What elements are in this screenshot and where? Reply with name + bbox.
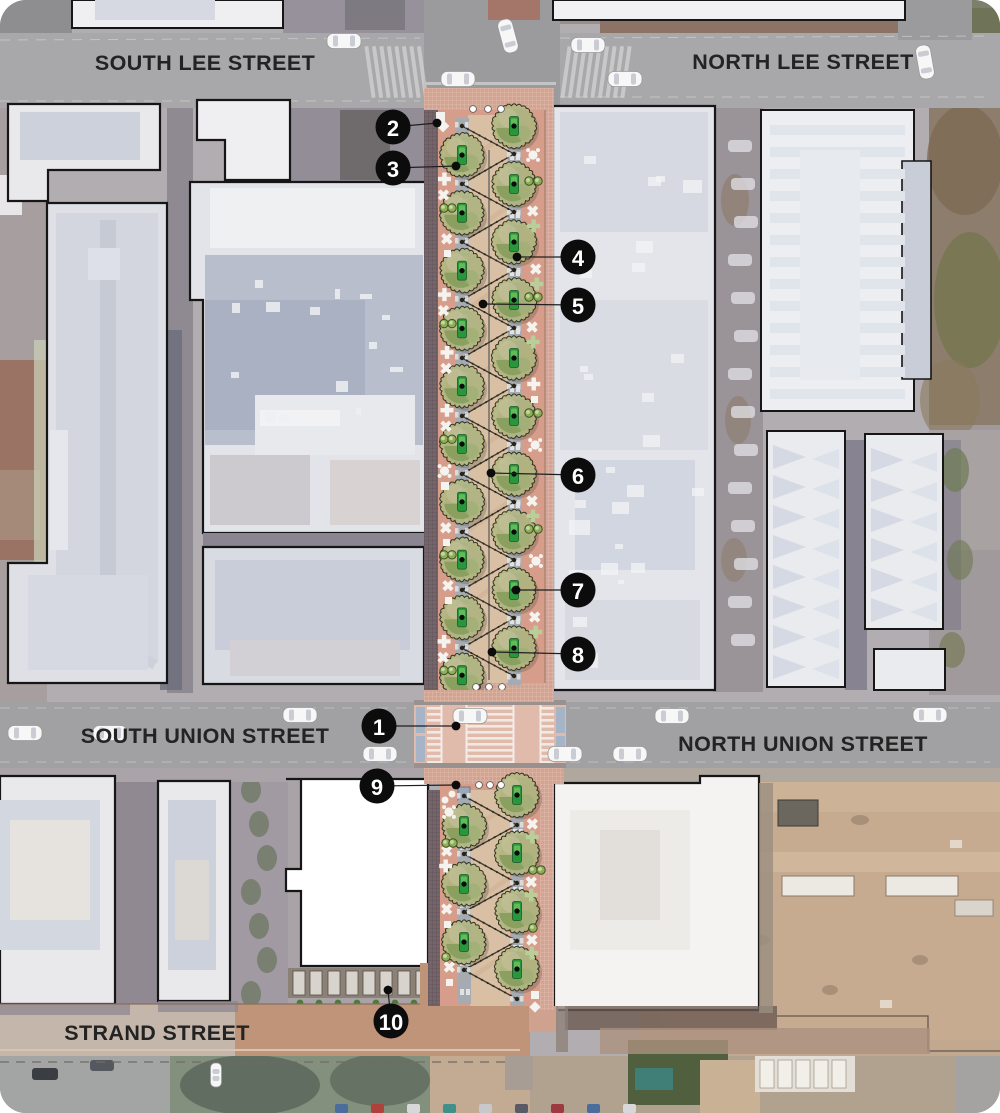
svg-text:2: 2 [387, 116, 399, 141]
svg-text:4: 4 [572, 246, 585, 271]
svg-text:1: 1 [373, 715, 385, 740]
svg-text:STRAND STREET: STRAND STREET [64, 1021, 250, 1045]
svg-text:SOUTH LEE STREET: SOUTH LEE STREET [95, 51, 315, 75]
svg-text:NORTH UNION STREET: NORTH UNION STREET [678, 732, 928, 756]
svg-text:SOUTH UNION STREET: SOUTH UNION STREET [81, 724, 330, 748]
svg-text:NORTH LEE STREET: NORTH LEE STREET [692, 50, 913, 74]
svg-text:8: 8 [572, 643, 584, 668]
svg-text:10: 10 [379, 1010, 403, 1035]
svg-text:3: 3 [387, 157, 399, 182]
svg-text:7: 7 [572, 579, 584, 604]
svg-text:6: 6 [572, 464, 584, 489]
svg-text:9: 9 [371, 775, 383, 800]
svg-text:5: 5 [572, 294, 584, 319]
